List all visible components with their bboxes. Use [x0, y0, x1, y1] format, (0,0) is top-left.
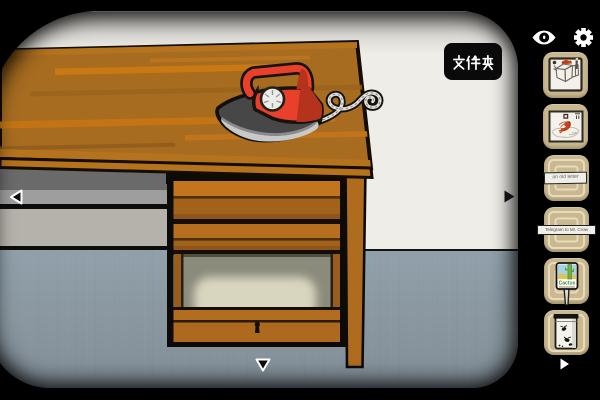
svg-text:Cactus: Cactus [558, 281, 575, 287]
